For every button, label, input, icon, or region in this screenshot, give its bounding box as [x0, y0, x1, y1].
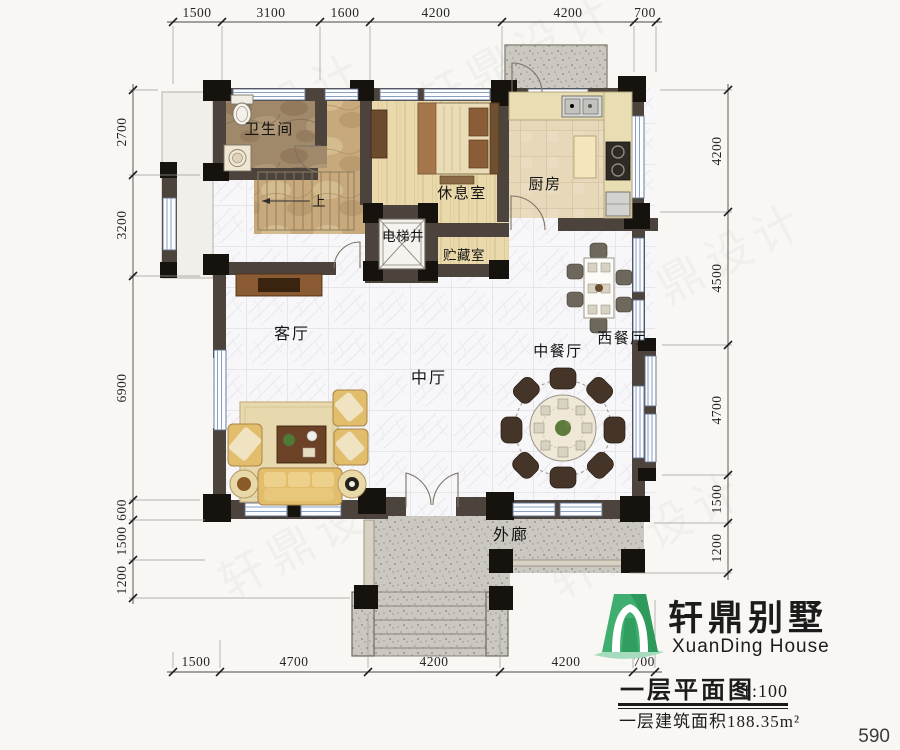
washing-machine	[224, 145, 251, 171]
window	[560, 503, 602, 516]
brand-logo: 轩鼎别墅 XuanDing House	[594, 594, 830, 659]
window	[380, 89, 418, 100]
room-label-veranda: 外廊	[493, 526, 529, 544]
dim-top-0: 1500	[183, 5, 212, 20]
room-label-elevator: 电梯井	[382, 229, 424, 244]
dim-bottom-0: 1500	[182, 654, 211, 669]
window	[513, 503, 555, 516]
veranda-railing-left	[364, 520, 374, 588]
veranda-railing	[512, 560, 624, 566]
dim-left-2: 6900	[114, 374, 129, 403]
room-label-lounge: 休息室	[437, 185, 487, 202]
stair-up-label: 上	[312, 194, 326, 209]
room-label-kitchen: 厨房	[528, 176, 561, 193]
window	[424, 89, 490, 100]
dim-right-4: 1200	[709, 534, 724, 563]
drawing-scale: 1:100	[742, 681, 788, 701]
dim-top-1: 3100	[257, 5, 286, 20]
dim-left-3: 600	[114, 499, 129, 521]
armchair	[334, 429, 368, 465]
lounge-wardrobe	[371, 110, 387, 158]
dim-left-0: 2700	[114, 118, 129, 147]
stove	[606, 142, 630, 180]
room-label-bathroom: 卫生间	[244, 121, 294, 138]
elevator-shaft	[379, 219, 425, 269]
dim-left-5: 1200	[114, 566, 129, 595]
room-label-dining-west: 西餐厅	[597, 330, 647, 347]
dim-right-1: 4500	[709, 264, 724, 293]
tv	[258, 278, 300, 292]
window	[632, 116, 644, 198]
dim-top-2: 1600	[331, 5, 360, 20]
sofa-three-seat	[258, 468, 342, 505]
window	[325, 89, 358, 100]
dim-top-3: 4200	[422, 5, 451, 20]
title-block: 一层平面图 1:100 一层建筑面积188.35m²	[618, 677, 800, 731]
dim-top-5: 700	[634, 5, 656, 20]
room-label-living: 客厅	[274, 325, 310, 343]
round-dining-set	[501, 368, 625, 488]
coffee-table	[277, 426, 326, 463]
dim-left-1: 3200	[114, 211, 129, 240]
armchair	[228, 424, 263, 466]
floor-plan-canvas: 轩鼎设计 轩鼎设计 轩鼎设计 轩鼎设计 轩鼎设计 轩鼎设计	[0, 0, 900, 750]
room-label-dining-cn: 中餐厅	[533, 343, 583, 360]
room-label-hall: 中厅	[411, 369, 447, 387]
window	[633, 386, 644, 458]
dim-right-2: 4700	[709, 396, 724, 425]
dim-top-4: 4200	[554, 5, 583, 20]
fridge	[606, 192, 630, 216]
title-underline-thin	[618, 708, 788, 709]
page-number: 590	[858, 726, 890, 747]
bed	[418, 103, 499, 184]
window	[645, 356, 656, 406]
dim-bottom-2: 4200	[420, 654, 449, 669]
side-table	[338, 470, 366, 498]
title-underline-thick	[618, 703, 788, 706]
dim-bottom-3: 4200	[552, 654, 581, 669]
drawing-title: 一层平面图	[620, 677, 755, 704]
toilet	[231, 95, 253, 125]
back-porch-floor	[505, 45, 607, 92]
kitchen-island	[574, 136, 596, 178]
dim-right-3: 1500	[709, 485, 724, 514]
window	[163, 198, 176, 250]
dim-right-0: 4200	[709, 137, 724, 166]
room-label-storage: 贮藏室	[443, 247, 485, 263]
logo-name-en: XuanDing House	[672, 636, 830, 657]
window	[633, 238, 644, 292]
logo-name-cn: 轩鼎别墅	[668, 599, 828, 638]
dim-bottom-1: 4700	[280, 654, 309, 669]
area-note: 一层建筑面积188.35m²	[619, 712, 800, 731]
dim-left-4: 1500	[114, 527, 129, 556]
armchair	[333, 390, 367, 426]
floor-plan-page: 轩鼎设计 轩鼎设计 轩鼎设计 轩鼎设计 轩鼎设计 轩鼎设计	[0, 0, 900, 750]
window	[645, 414, 656, 462]
side-table	[230, 470, 258, 498]
kitchen-sink	[562, 96, 602, 117]
window	[214, 350, 226, 430]
